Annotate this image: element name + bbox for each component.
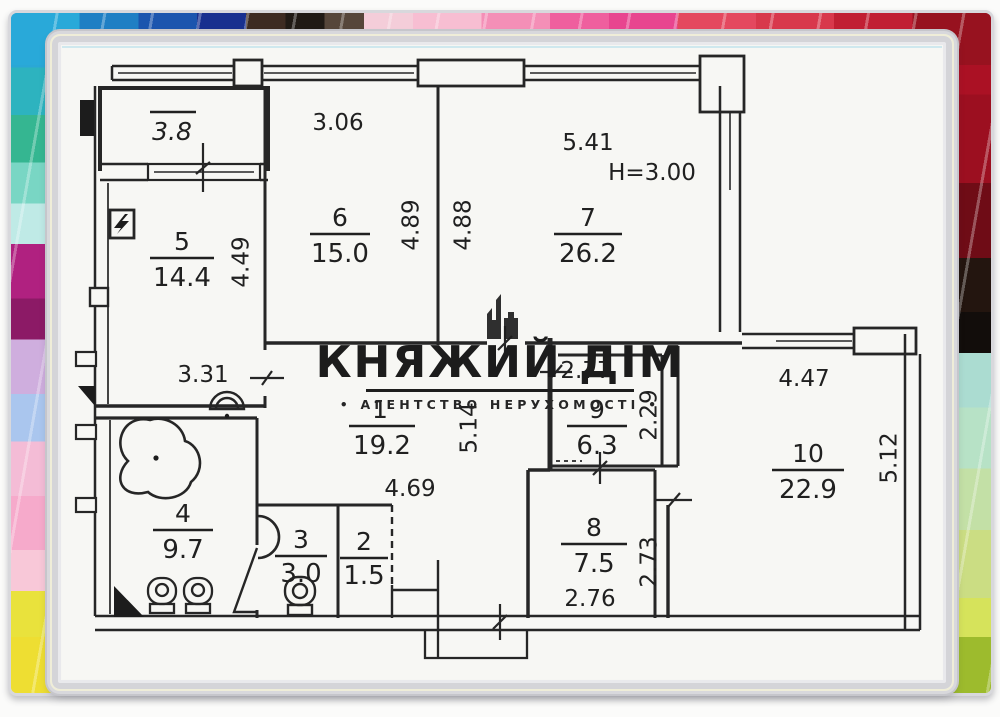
floorplan-paper [62, 46, 942, 679]
inner-photo-frame [50, 34, 954, 691]
screenshot: 3.8 H=3.00 3.06 5.41 3.31 2.77 4.47 4.69… [0, 0, 1000, 717]
